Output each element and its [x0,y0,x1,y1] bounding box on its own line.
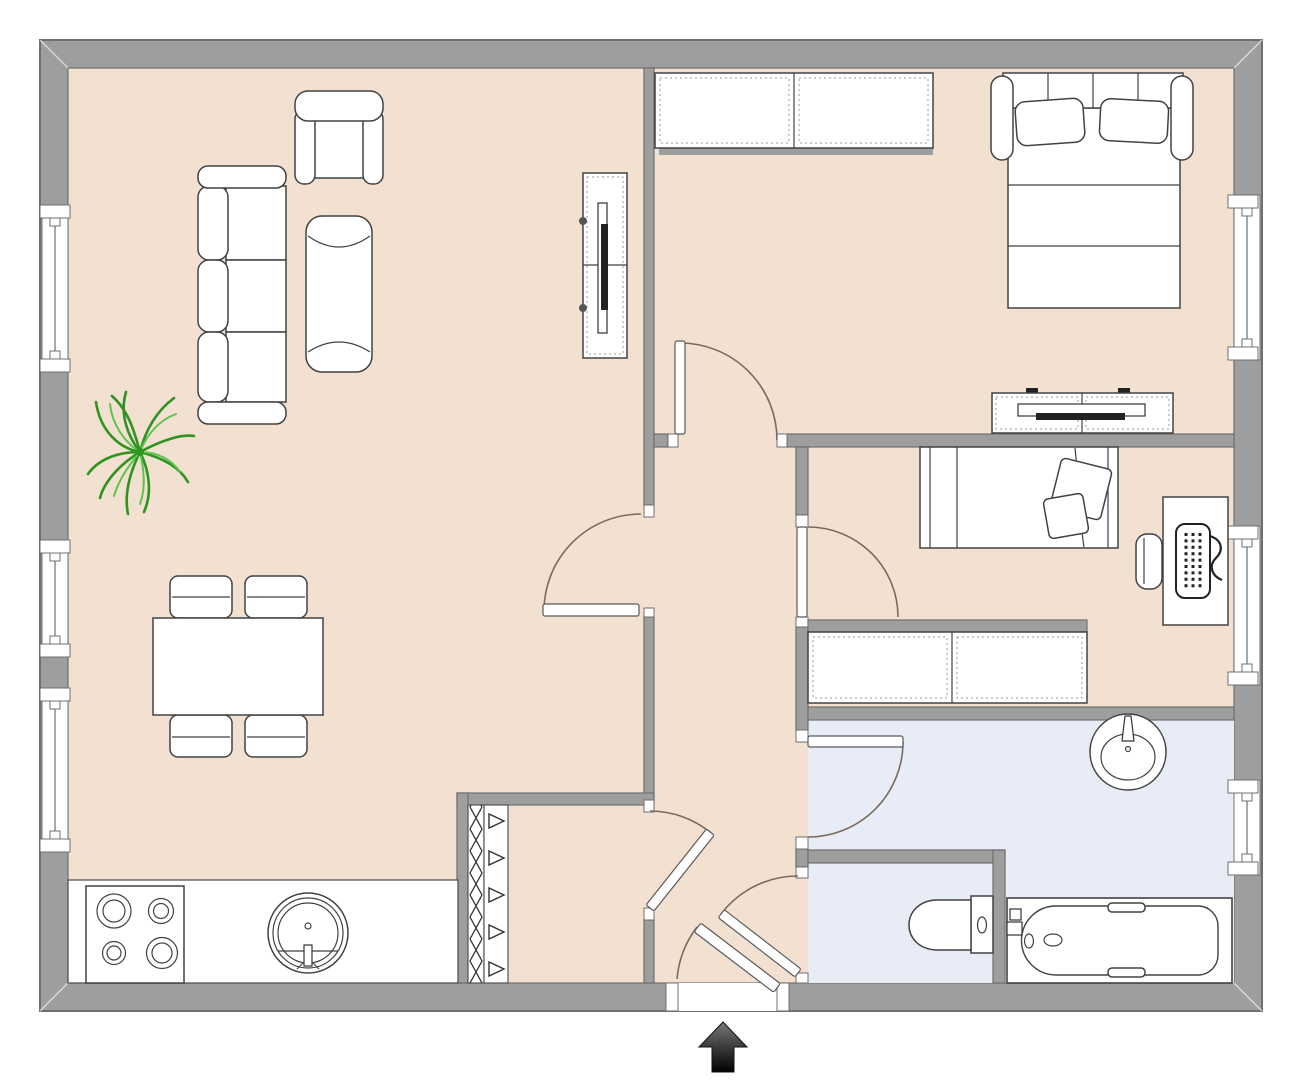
desk [1163,497,1228,625]
dining-chair [245,715,307,757]
washbasin [1090,714,1166,790]
tv-dresser-bedroom [992,388,1173,433]
bathtub [1007,898,1232,983]
window-left-3 [40,688,70,852]
sideboard [808,620,1087,703]
sofa [198,166,286,424]
tub-handle [1108,968,1145,977]
dining-table [153,618,323,715]
faucet [304,945,312,966]
tv-cabinet-living-room [579,173,627,358]
floor-plan-canvas [0,0,1298,1080]
pillow [1043,493,1089,539]
tub-handle [1108,903,1145,912]
armchair [295,91,383,184]
radiator-zigzag [468,805,508,983]
tub-faucet [1010,909,1021,920]
toilet [909,896,993,953]
wardrobe [655,73,933,155]
kitchen-sink [268,893,348,973]
floor-plan-page [0,0,1298,1080]
dining-chair [170,715,232,757]
pillow [1015,98,1086,147]
desk-chair [1136,534,1162,589]
single-bed [920,447,1118,548]
double-bed [991,73,1193,308]
window-left-1 [40,205,70,372]
window-left-2 [40,540,70,657]
dining-chair [170,576,232,618]
chaise-lounge [306,216,372,372]
entrance-arrow-icon [699,1022,747,1072]
stove [86,886,184,983]
dining-chair [245,576,307,618]
pillow [1099,98,1169,144]
